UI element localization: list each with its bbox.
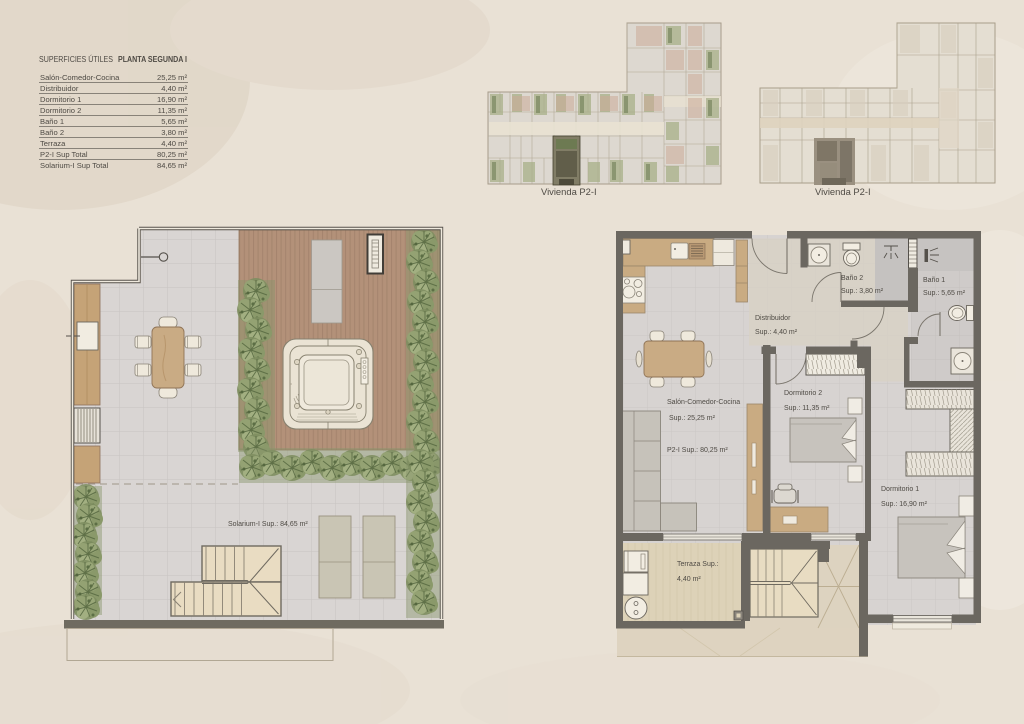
svg-text:3,80 m²: 3,80 m² bbox=[161, 128, 187, 137]
svg-text:Sup.: 4,40 m²: Sup.: 4,40 m² bbox=[755, 329, 798, 336]
svg-text:4,40 m²: 4,40 m² bbox=[161, 84, 187, 93]
svg-text:Sup.: 3,80 m²: Sup.: 3,80 m² bbox=[841, 288, 884, 295]
svg-text:Dormitorio 2: Dormitorio 2 bbox=[784, 390, 822, 397]
svg-text:Dormitorio 1: Dormitorio 1 bbox=[881, 486, 919, 493]
svg-text:Solarium-I Sup.: 84,65 m²: Solarium-I Sup.: 84,65 m² bbox=[228, 521, 308, 528]
svg-text:Salón-Comedor-Cocina: Salón-Comedor-Cocina bbox=[40, 73, 120, 82]
svg-text:Sup.: 5,65 m²: Sup.: 5,65 m² bbox=[923, 290, 966, 297]
svg-text:Baño 1: Baño 1 bbox=[923, 277, 945, 284]
svg-text:PLANTA SEGUNDA I: PLANTA SEGUNDA I bbox=[118, 55, 187, 64]
svg-text:Distribuidor: Distribuidor bbox=[40, 84, 79, 93]
svg-text:Terraza: Terraza bbox=[40, 139, 66, 148]
svg-text:P2-I Sup.: 80,25 m²: P2-I Sup.: 80,25 m² bbox=[667, 447, 728, 454]
svg-text:4,40 m²: 4,40 m² bbox=[677, 576, 701, 583]
svg-text:Terraza Sup.:: Terraza Sup.: bbox=[677, 561, 719, 568]
svg-text:Vivienda P2-I: Vivienda P2-I bbox=[541, 186, 597, 197]
svg-text:25,25 m²: 25,25 m² bbox=[157, 73, 187, 82]
svg-text:5,65 m²: 5,65 m² bbox=[161, 117, 187, 126]
svg-text:Distribuidor: Distribuidor bbox=[755, 315, 791, 322]
svg-text:Baño 1: Baño 1 bbox=[40, 117, 64, 126]
svg-text:Solarium-I Sup Total: Solarium-I Sup Total bbox=[40, 161, 109, 170]
svg-text:P2-I Sup Total: P2-I Sup Total bbox=[40, 150, 88, 159]
svg-text:11,35 m²: 11,35 m² bbox=[158, 106, 188, 115]
svg-text:SUPERFICIES ÚTILES: SUPERFICIES ÚTILES bbox=[39, 55, 113, 64]
svg-text:Dormitorio 2: Dormitorio 2 bbox=[40, 106, 81, 115]
svg-text:Sup.: 25,25 m²: Sup.: 25,25 m² bbox=[669, 415, 716, 422]
svg-text:Salón-Comedor-Cocina: Salón-Comedor-Cocina bbox=[667, 399, 740, 406]
svg-text:Baño 2: Baño 2 bbox=[841, 275, 863, 282]
svg-text:Baño 2: Baño 2 bbox=[40, 128, 64, 137]
svg-text:80,25 m²: 80,25 m² bbox=[157, 150, 187, 159]
svg-text:16,90 m²: 16,90 m² bbox=[157, 95, 187, 104]
svg-text:Sup.: 16,90 m²: Sup.: 16,90 m² bbox=[881, 501, 928, 508]
svg-text:84,65 m²: 84,65 m² bbox=[157, 161, 187, 170]
svg-text:4,40 m²: 4,40 m² bbox=[161, 139, 187, 148]
svg-text:Vivienda P2-I: Vivienda P2-I bbox=[815, 186, 871, 197]
svg-text:Dormitorio 1: Dormitorio 1 bbox=[40, 95, 81, 104]
svg-text:Sup.: 11,35 m²: Sup.: 11,35 m² bbox=[784, 405, 830, 412]
